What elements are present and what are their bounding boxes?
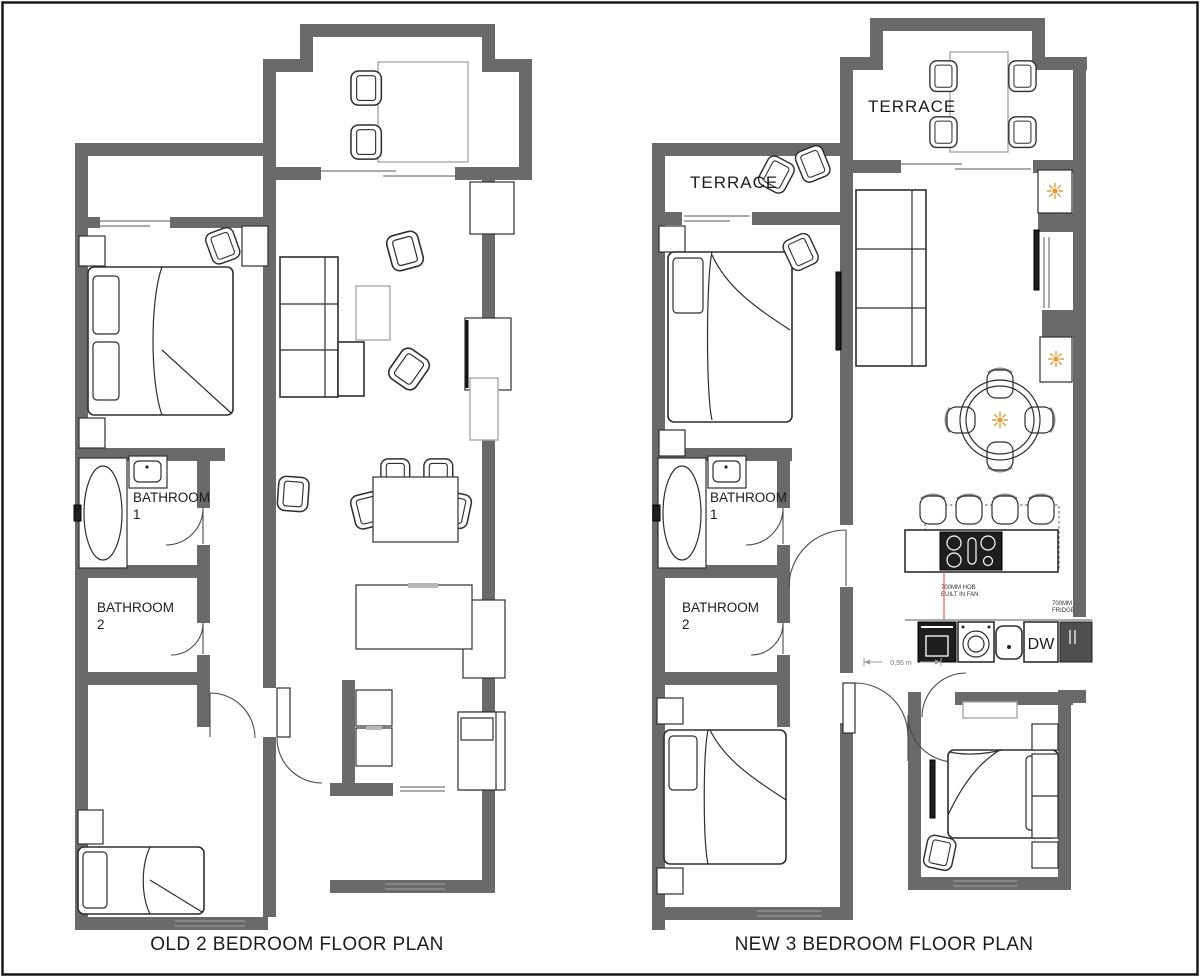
dining-chair <box>987 369 1013 398</box>
bathroom2-label: BATHROOM <box>682 600 759 615</box>
bar-stool <box>992 495 1018 524</box>
terrace-chair <box>1009 61 1036 92</box>
terrace-chair <box>930 117 957 148</box>
oven <box>918 622 956 662</box>
kitchen-sink <box>996 626 1022 659</box>
cabinet <box>356 728 392 766</box>
dining-table <box>373 477 458 542</box>
nightstand <box>659 430 685 456</box>
entry-cabinet <box>963 702 1017 718</box>
tv <box>836 272 841 350</box>
bathroom1-label: BATHROOM <box>710 490 787 505</box>
terrace-chair <box>351 71 381 105</box>
cabinet <box>1032 724 1058 750</box>
terrace-chair <box>930 61 957 92</box>
nightstand <box>79 418 105 448</box>
coffee-table <box>356 286 390 340</box>
terrace-chair <box>1009 117 1036 148</box>
hob-note-line2: BUILT IN FAN <box>941 592 978 598</box>
hob <box>940 532 1002 570</box>
bathroom1-number: 1 <box>133 507 141 522</box>
armchair <box>277 476 310 512</box>
hob-note-line1: 700MM HOB <box>941 585 976 591</box>
bar-stool <box>1028 495 1054 524</box>
washing-machine <box>958 622 994 662</box>
sun-icon <box>992 412 1008 428</box>
dining-chair <box>987 442 1013 471</box>
bar-stool <box>956 495 982 524</box>
terrace-table <box>950 52 1008 152</box>
daybed <box>356 585 472 649</box>
sofa <box>856 190 926 366</box>
nightstand <box>79 236 105 266</box>
bathroom1-label: BATHROOM <box>133 490 210 505</box>
armchair <box>922 834 957 872</box>
nightstand <box>659 226 685 252</box>
sofa <box>280 257 338 397</box>
tv <box>930 760 935 818</box>
nightstand <box>78 810 103 844</box>
dishwasher-label: DW <box>1028 636 1056 653</box>
terrace-side-label: TERRACE <box>690 173 778 192</box>
tv <box>1034 230 1039 290</box>
dishwasher: DW <box>1024 622 1058 662</box>
bar-stool <box>920 495 946 524</box>
old-study-room <box>458 712 496 790</box>
bathroom2-label: BATHROOM <box>97 600 174 615</box>
terrace-chair <box>351 125 381 159</box>
side-table <box>242 226 268 266</box>
dimension-label: 0,95 m <box>890 660 912 667</box>
fridge <box>1060 622 1092 662</box>
nightstand <box>657 698 683 724</box>
fridge-note-line2: FRIDGE <box>1052 608 1075 614</box>
sofa-chaise <box>338 342 364 396</box>
fridge-note-line1: 700MM <box>1052 601 1072 607</box>
nightstand <box>657 868 683 894</box>
bathroom2-number: 2 <box>682 617 690 632</box>
bathroom1-number: 1 <box>710 507 718 522</box>
terrace-top-label: TERRACE <box>868 97 956 116</box>
cabinet <box>1032 842 1058 868</box>
cabinet <box>356 690 392 726</box>
new-plan-title: NEW 3 BEDROOM FLOOR PLAN <box>735 934 1034 955</box>
terrace-table <box>378 62 468 162</box>
bathroom2-number: 2 <box>97 617 105 632</box>
sun-icon <box>1048 351 1064 367</box>
sun-icon <box>1047 183 1063 199</box>
floor-plan-comparison: BATHROOM 1 BATHROOM 2 <box>0 0 1200 980</box>
old-plan-title: OLD 2 BEDROOM FLOOR PLAN <box>150 934 444 955</box>
